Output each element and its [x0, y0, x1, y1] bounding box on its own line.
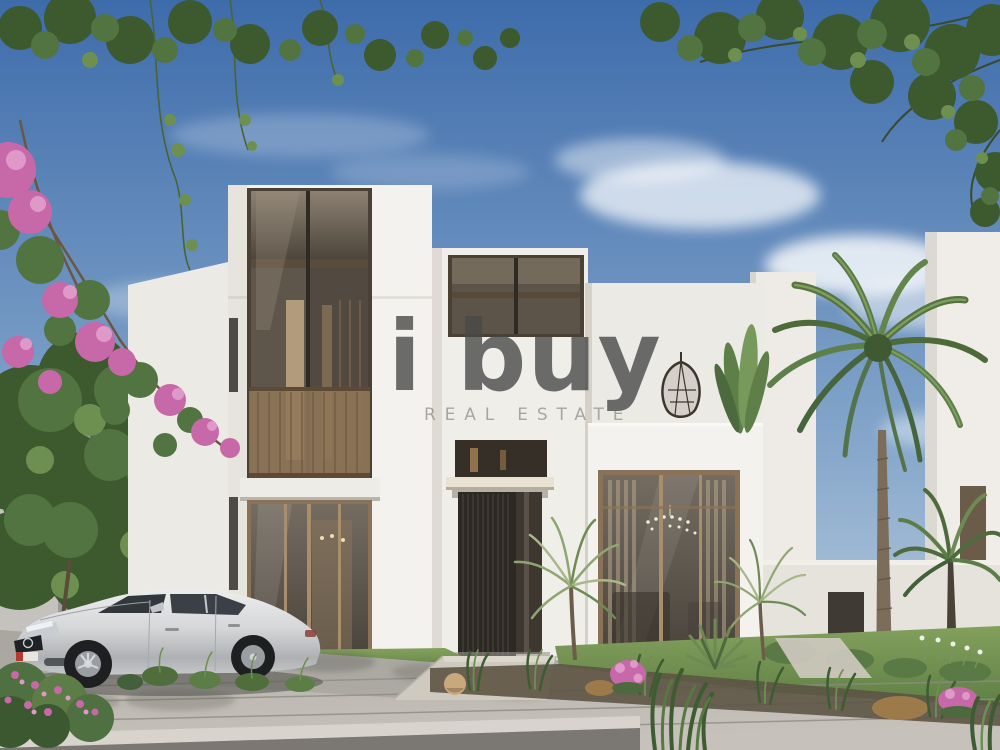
car-taillight — [305, 630, 316, 637]
living-room-window — [598, 470, 740, 660]
villa-right-wing — [585, 283, 774, 665]
entrance-door — [458, 492, 542, 657]
villa-left-block — [228, 185, 432, 665]
scene-canvas — [0, 0, 1000, 750]
pink-flower-bush — [610, 660, 646, 694]
villa-photo-scene: i buy REAL ESTATE — [0, 0, 1000, 750]
floor-slab-band — [240, 478, 380, 500]
villa-central-tower — [432, 248, 588, 660]
slot-window-upper — [229, 318, 238, 392]
slot-window-lower — [229, 497, 238, 590]
curtain-wall — [247, 188, 372, 480]
car-rear-wheel — [231, 635, 275, 679]
balcony-railing — [249, 387, 370, 478]
tower-glazing — [448, 255, 584, 337]
